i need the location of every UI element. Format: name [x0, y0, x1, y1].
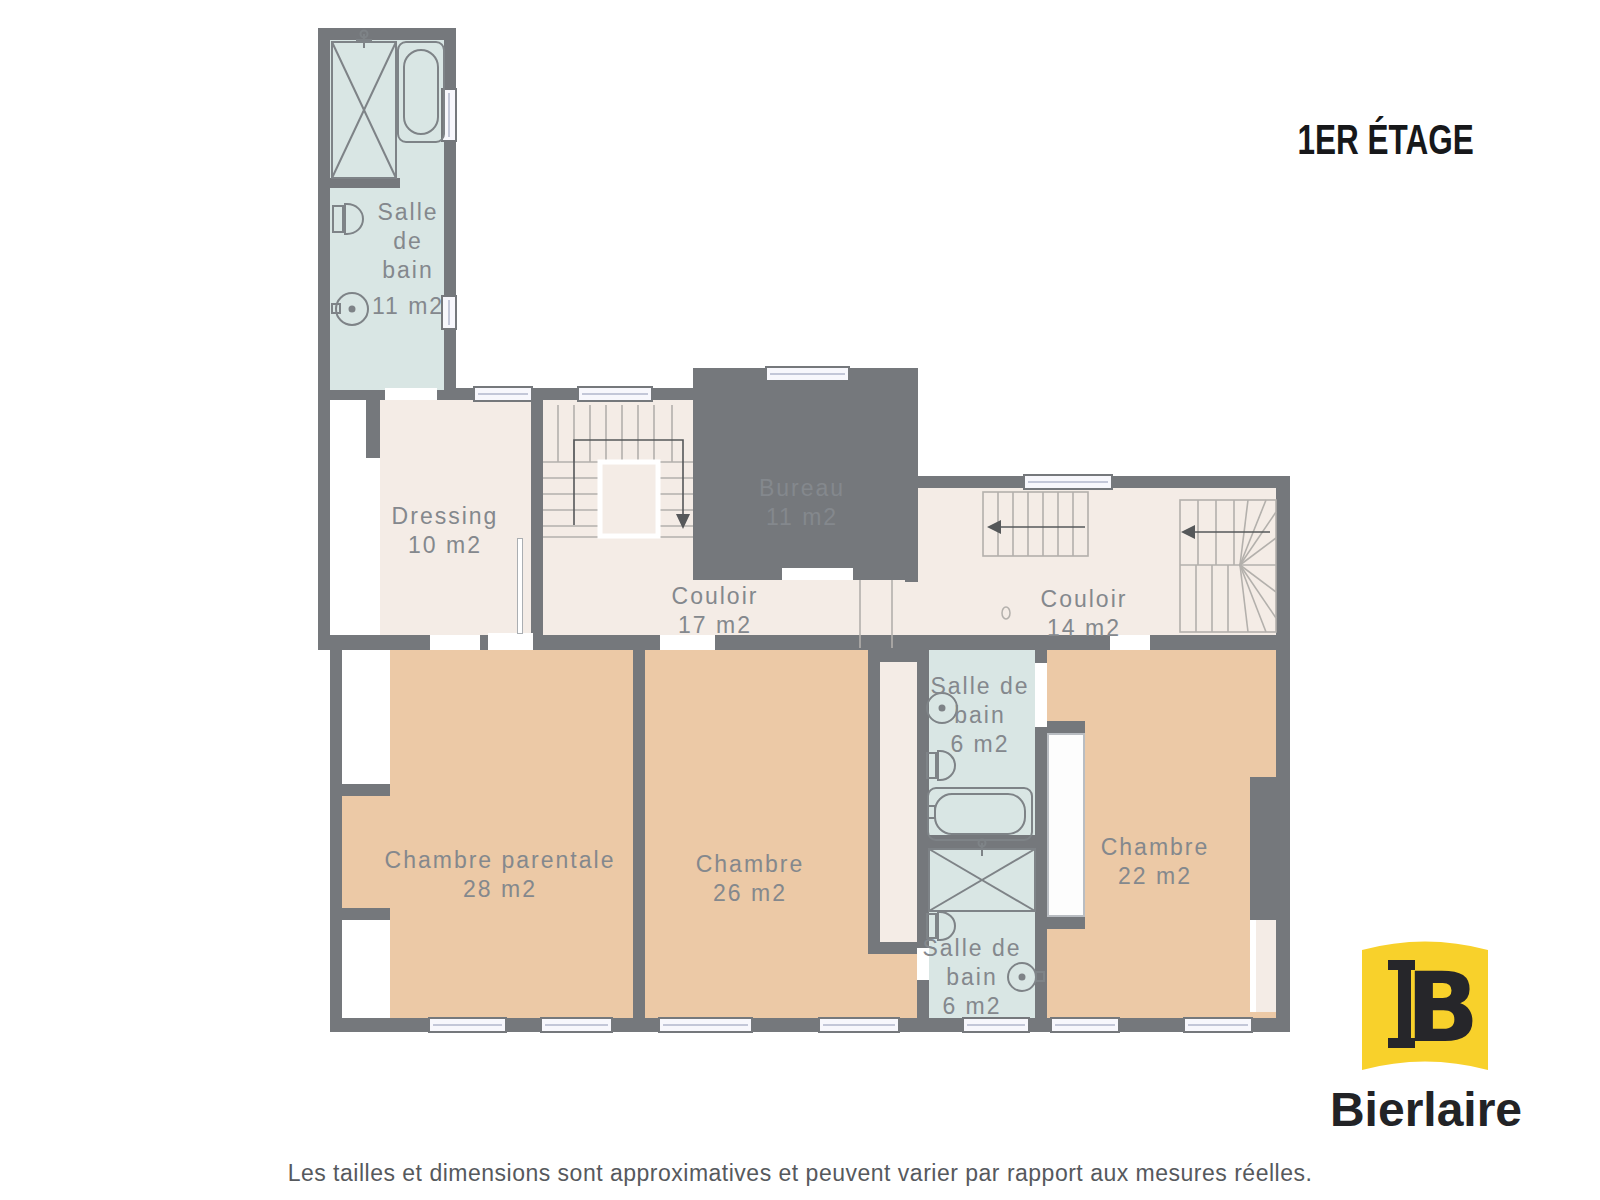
wall-stub	[1047, 917, 1085, 929]
room-area: 14 m2	[984, 614, 1184, 643]
closet-niche	[880, 662, 917, 942]
room-name: Salle de bain	[912, 934, 1032, 992]
room-chambre-26-extension	[868, 954, 917, 1018]
room-area: 26 m2	[650, 879, 850, 908]
window	[765, 366, 850, 382]
wall-segment	[868, 650, 880, 954]
window	[1050, 1017, 1120, 1033]
room-label-bureau: Bureau 11 m2	[702, 474, 902, 532]
room-label-couloir-14: Couloir 14 m2	[984, 585, 1184, 643]
room-area: 11 m2	[702, 503, 902, 532]
room-area: 6 m2	[920, 730, 1040, 759]
room-area: 10 m2	[345, 531, 545, 560]
room-area: 28 m2	[370, 875, 630, 904]
room-area-salle-de-bain-11: 11 m2	[363, 292, 453, 321]
door-opening	[385, 388, 437, 400]
room-name: Salle de bain	[920, 672, 1040, 730]
floor-title: 1ER ÉTAGE	[1298, 116, 1471, 164]
wall-stub	[1047, 721, 1085, 733]
room-label-salle-de-bain-11: Salle de bain	[372, 198, 444, 285]
brand-name: Bierlaire	[1306, 1082, 1546, 1137]
room-label-chambre-parentale: Chambre parentale 28 m2	[370, 846, 630, 904]
door-opening	[782, 568, 853, 580]
window	[818, 1017, 900, 1033]
room-name: Dressing	[345, 502, 545, 531]
room-label-chambre-22: Chambre 22 m2	[1055, 833, 1255, 891]
room-area: 22 m2	[1055, 862, 1255, 891]
room-name: Chambre	[1055, 833, 1255, 862]
alcove	[342, 920, 390, 1018]
window	[1183, 1017, 1253, 1033]
room-name: Chambre	[650, 850, 850, 879]
wall-stub	[342, 908, 390, 920]
wall-stub	[905, 568, 918, 582]
window	[1023, 474, 1113, 490]
wall-segment	[917, 835, 1047, 849]
window	[428, 1017, 507, 1033]
shower-partition	[330, 178, 400, 188]
logo-pennant	[1362, 942, 1488, 1071]
door-opening	[430, 635, 480, 650]
room-label-dressing: Dressing 10 m2	[345, 502, 545, 560]
room-label-chambre-26: Chambre 26 m2	[650, 850, 850, 908]
window	[441, 88, 457, 142]
window	[577, 386, 653, 402]
room-name: Couloir	[615, 582, 815, 611]
window	[658, 1017, 753, 1033]
floorplan-page: Salle de bain 11 m2 Dressing 10 m2 Burea…	[0, 0, 1600, 1200]
wall-stub	[342, 784, 390, 796]
wall-segment	[868, 942, 917, 954]
room-name: Couloir	[984, 585, 1184, 614]
room-name: Bureau	[702, 474, 902, 503]
disclaimer-text: Les tailles et dimensions sont approxima…	[0, 1160, 1600, 1187]
room-area: 11 m2	[363, 292, 453, 321]
window	[473, 386, 533, 402]
room-area: 17 m2	[615, 611, 815, 640]
room-label-salle-de-bain-6-bottom: Salle de bain 6 m2	[912, 934, 1032, 1021]
room-name: Salle de bain	[372, 198, 444, 285]
room-label-couloir-17: Couloir 17 m2	[615, 582, 815, 640]
window	[540, 1017, 613, 1033]
bierlaire-monogram: B	[1388, 952, 1479, 1064]
room-label-salle-de-bain-6-middle: Salle de bain 6 m2	[920, 672, 1040, 759]
recess-niche	[1256, 920, 1276, 1012]
alcove	[342, 650, 390, 784]
room-name: Chambre parentale	[370, 846, 630, 875]
door-opening	[488, 633, 533, 650]
room-chambre-26	[645, 650, 868, 1018]
wall-stub	[366, 400, 380, 458]
room-area: 6 m2	[912, 992, 1032, 1021]
monogram-letter: B	[1406, 952, 1479, 1064]
